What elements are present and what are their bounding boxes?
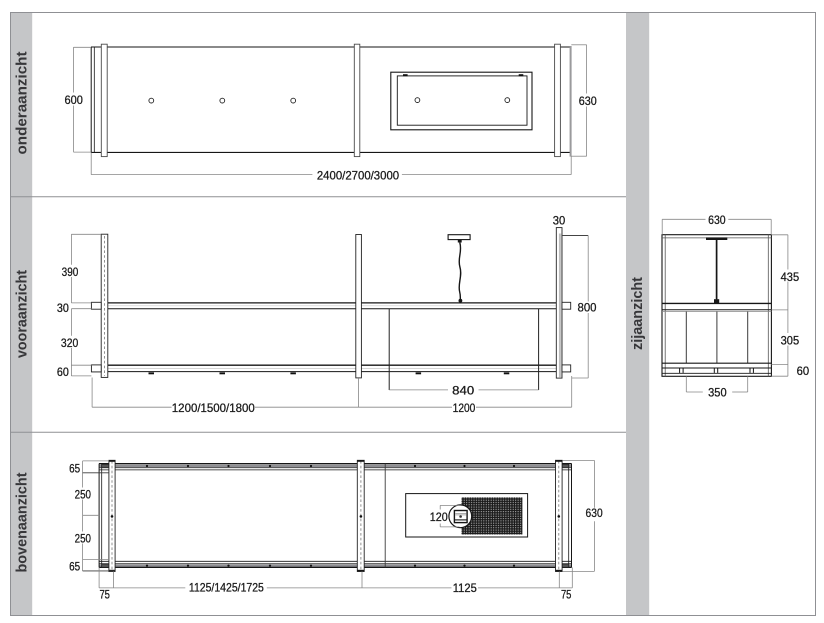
svg-text:1200/1500/1800: 1200/1500/1800: [172, 401, 255, 415]
svg-text:bovenaanzicht: bovenaanzicht: [13, 472, 30, 572]
svg-text:60: 60: [57, 365, 69, 379]
svg-text:250: 250: [75, 487, 92, 501]
svg-text:65: 65: [69, 560, 80, 574]
svg-text:65: 65: [69, 461, 80, 475]
svg-text:1125: 1125: [453, 581, 477, 595]
svg-text:435: 435: [781, 270, 800, 284]
svg-text:305: 305: [781, 334, 800, 348]
svg-text:250: 250: [75, 531, 92, 545]
svg-text:120: 120: [430, 510, 448, 524]
svg-text:1200: 1200: [453, 401, 476, 415]
svg-text:390: 390: [62, 265, 79, 279]
svg-text:30: 30: [57, 301, 69, 315]
svg-text:630: 630: [579, 94, 597, 108]
svg-text:30: 30: [553, 213, 566, 227]
svg-text:800: 800: [578, 301, 597, 315]
svg-text:75: 75: [99, 587, 110, 601]
svg-text:840: 840: [452, 384, 474, 398]
svg-text:630: 630: [708, 213, 726, 227]
svg-text:630: 630: [586, 506, 603, 520]
svg-text:vooraanzicht: vooraanzicht: [13, 270, 30, 358]
svg-text:onderaanzicht: onderaanzicht: [13, 52, 30, 155]
svg-text:60: 60: [797, 364, 810, 378]
svg-text:600: 600: [65, 93, 84, 107]
svg-text:1125/1425/1725: 1125/1425/1725: [189, 581, 264, 595]
svg-text:zijaanzicht: zijaanzicht: [629, 277, 646, 350]
svg-text:75: 75: [561, 588, 572, 602]
svg-text:320: 320: [61, 336, 79, 350]
svg-text:2400/2700/3000: 2400/2700/3000: [317, 169, 400, 183]
svg-text:350: 350: [708, 386, 727, 400]
